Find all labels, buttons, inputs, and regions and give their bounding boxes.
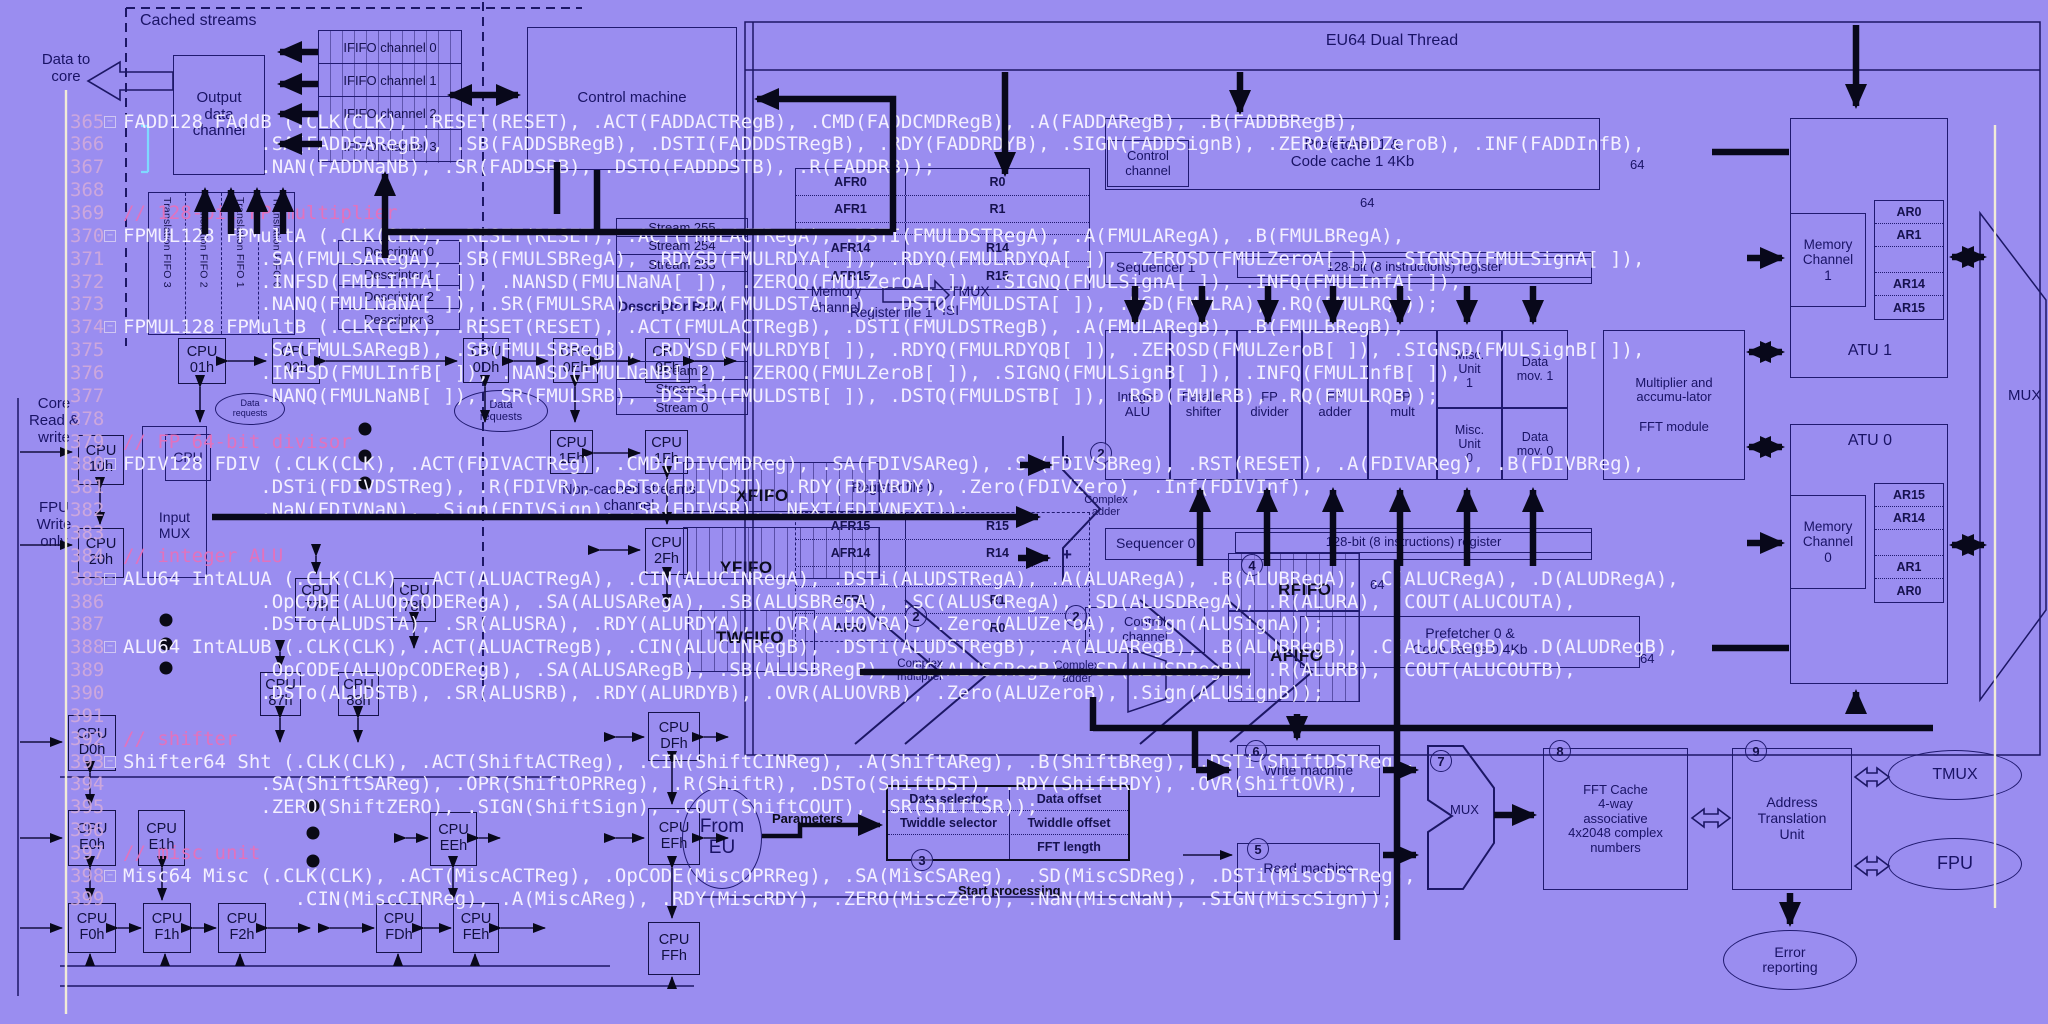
code-text: .NANQ(FMULNaNA[ ]), .SR(FMULSRA), .DSTSD… (123, 293, 1438, 316)
line-number: 389 (70, 659, 104, 682)
fold-marker-icon: − (104, 230, 116, 242)
fold-marker-icon: − (104, 870, 116, 882)
code-line: 383 (0, 522, 2048, 545)
code-line: 369// 128-bit FP multiplier (0, 202, 2048, 225)
code-text: // 128-bit FP multiplier (123, 202, 398, 225)
code-line: 395 .ZERO(ShiftZERO), .SIGN(ShiftSign), … (0, 796, 2048, 819)
code-line: 399 .CIN(MiscCINReg), .A(MiscAReg), .RDY… (0, 888, 2048, 911)
line-number: 382 (70, 499, 104, 522)
code-text: // FP 64-bit divisor (123, 431, 352, 454)
fold-marker-icon: − (104, 321, 116, 333)
code-text: .NANQ(FMULNaNB[ ]), .SR(FMULSRB), .DSTSD… (123, 385, 1438, 408)
line-number: 394 (70, 773, 104, 796)
code-line: 381 .DSTi(FDIVDSTReg), .R(FDIVR), .DSTo(… (0, 476, 2048, 499)
line-number: 376 (70, 362, 104, 385)
code-line: 380−FDIV128 FDIV (.CLK(CLK), .ACT(FDIVAC… (0, 453, 2048, 476)
code-line: 397// misc unit (0, 842, 2048, 865)
code-line: 382 .NaN(FDIVNaN), .Sign(FDIVSign), .SR(… (0, 499, 2048, 522)
fold-marker-icon: − (104, 458, 116, 470)
line-number: 378 (70, 408, 104, 431)
code-line: 370−FPMUL128 FPMultA (.CLK(CLK), .RESET(… (0, 225, 2048, 248)
line-number: 383 (70, 522, 104, 545)
code-line: 368 (0, 179, 2048, 202)
code-line: 372 .INFSD(FMULInfA[ ]), .NANSD(FMULNaNA… (0, 271, 2048, 294)
fold-marker-icon: − (104, 573, 116, 585)
line-number: 372 (70, 271, 104, 294)
fold-marker-icon: − (104, 641, 116, 653)
code-line: 387 .DSTo(ALUDSTA), .SR(ALUSRA), .RDY(AL… (0, 613, 2048, 636)
code-line: 373 .NANQ(FMULNaNA[ ]), .SR(FMULSRA), .D… (0, 293, 2048, 316)
code-text: .SA(FMULSARegA), .SB(FMULSBRegA), .RDYSD… (123, 248, 1644, 271)
line-number: 398 (70, 865, 104, 888)
code-text: .DSTo(ALUDSTA), .SR(ALUSRA), .RDY(ALURDY… (123, 613, 1324, 636)
line-number: 390 (70, 682, 104, 705)
code-text: Shifter64 Sht (.CLK(CLK), .ACT(ShiftACTR… (123, 751, 1416, 774)
code-text: // misc unit (123, 842, 260, 865)
code-text: FDIV128 FDIV (.CLK(CLK), .ACT(FDIVACTReg… (123, 453, 1644, 476)
code-text: .NaN(FDIVNaN), .Sign(FDIVSign), .SR(FDIV… (123, 499, 969, 522)
code-line: 392// shifter (0, 728, 2048, 751)
code-line: 366 .SA(FADDSARegB), .SB(FADDSBRegB), .D… (0, 133, 2048, 156)
code-line: 367 .NAN(FADDNaNB), .SR(FADDSRB), .DSTO(… (0, 156, 2048, 179)
code-line: 391 (0, 705, 2048, 728)
line-number: 379 (70, 431, 104, 454)
line-number: 371 (70, 248, 104, 271)
line-number: 395 (70, 796, 104, 819)
line-number: 370 (70, 225, 104, 248)
line-number: 386 (70, 591, 104, 614)
code-line: 379// FP 64-bit divisor (0, 431, 2048, 454)
line-number: 392 (70, 728, 104, 751)
code-line: 389 .OpCODE(ALUOpCODERegB), .SA(ALUSAReg… (0, 659, 2048, 682)
line-number: 393 (70, 751, 104, 774)
line-number: 381 (70, 476, 104, 499)
line-number: 374 (70, 316, 104, 339)
code-line: 393−Shifter64 Sht (.CLK(CLK), .ACT(Shift… (0, 751, 2048, 774)
line-number: 369 (70, 202, 104, 225)
line-number: 391 (70, 705, 104, 728)
line-number: 397 (70, 842, 104, 865)
code-text: .INFSD(FMULInfB[ ]), .NANSD(FMULNaNB[ ])… (123, 362, 1461, 385)
code-text: .INFSD(FMULInfA[ ]), .NANSD(FMULNaNA[ ])… (123, 271, 1461, 294)
line-number: 366 (70, 133, 104, 156)
code-text: .OpCODE(ALUOpCODERegB), .SA(ALUSARegB), … (123, 659, 1576, 682)
code-text: .DSTi(FDIVDSTReg), .R(FDIVR), .DSTo(FDIV… (123, 476, 1313, 499)
line-number: 396 (70, 819, 104, 842)
screenshot-root: Output data channelControl machine Input… (0, 0, 2048, 1024)
code-text: .OpCODE(ALUOpCODERegA), .SA(ALUSARegA), … (123, 591, 1576, 614)
code-text: FPMUL128 FPMultB (.CLK(CLK), .RESET(RESE… (123, 316, 1404, 339)
code-text: .NAN(FADDNaNB), .SR(FADDSRB), .DSTO(FADD… (123, 156, 935, 179)
code-text: ALU64 IntALUB (.CLK(CLK), .ACT(ALUACTReg… (123, 636, 1679, 659)
line-number: 387 (70, 613, 104, 636)
code-line: 375 .SA(FMULSARegB), .SB(FMULSBRegB), .R… (0, 339, 2048, 362)
code-text: .CIN(MiscCINReg), .A(MiscAReg), .RDY(Mis… (123, 888, 1393, 911)
code-line: 371 .SA(FMULSARegA), .SB(FMULSBRegA), .R… (0, 248, 2048, 271)
code-line: 384// integer ALU (0, 545, 2048, 568)
code-text: .DSTo(ALUDSTB), .SR(ALUSRB), .RDY(ALURDY… (123, 682, 1324, 705)
code-line: 396 (0, 819, 2048, 842)
code-text: .SA(ShiftSAReg), .OPR(ShiftOPRReg), .R(S… (123, 773, 1358, 796)
line-number: 367 (70, 156, 104, 179)
code-line: 390 .DSTo(ALUDSTB), .SR(ALUSRB), .RDY(AL… (0, 682, 2048, 705)
line-number: 380 (70, 453, 104, 476)
code-text: .SA(FMULSARegB), .SB(FMULSBRegB), .RDYSD… (123, 339, 1644, 362)
code-text: // integer ALU (123, 545, 283, 568)
line-number: 373 (70, 293, 104, 316)
line-number: 384 (70, 545, 104, 568)
code-line: 388−ALU64 IntALUB (.CLK(CLK), .ACT(ALUAC… (0, 636, 2048, 659)
code-line: 365−FADD128 FAddB (.CLK(CLK), .RESET(RES… (0, 111, 2048, 134)
code-line: 394 .SA(ShiftSAReg), .OPR(ShiftOPRReg), … (0, 773, 2048, 796)
line-number: 375 (70, 339, 104, 362)
code-text: .ZERO(ShiftZERO), .SIGN(ShiftSign), .COU… (123, 796, 1038, 819)
code-line: 378 (0, 408, 2048, 431)
code-line: 377 .NANQ(FMULNaNB[ ]), .SR(FMULSRB), .D… (0, 385, 2048, 408)
code-line: 398−Misc64 Misc (.CLK(CLK), .ACT(MiscACT… (0, 865, 2048, 888)
code-text: ALU64 IntALUA (.CLK(CLK), .ACT(ALUACTReg… (123, 568, 1679, 591)
code-text: // shifter (123, 728, 237, 751)
line-number: 388 (70, 636, 104, 659)
line-number: 399 (70, 888, 104, 911)
line-number: 365 (70, 111, 104, 134)
code-text: FPMUL128 FPMultA (.CLK(CLK), .RESET(RESE… (123, 225, 1404, 248)
code-editor: 365−FADD128 FAddB (.CLK(CLK), .RESET(RES… (0, 0, 2048, 1024)
code-line: 376 .INFSD(FMULInfB[ ]), .NANSD(FMULNaNB… (0, 362, 2048, 385)
code-text: FADD128 FAddB (.CLK(CLK), .RESET(RESET),… (123, 111, 1358, 134)
fold-marker-icon: − (104, 116, 116, 128)
line-number: 368 (70, 179, 104, 202)
fold-marker-icon: − (104, 756, 116, 768)
code-line: 385−ALU64 IntALUA (.CLK(CLK), .ACT(ALUAC… (0, 568, 2048, 591)
line-number: 377 (70, 385, 104, 408)
code-text: .SA(FADDSARegB), .SB(FADDSBRegB), .DSTI(… (123, 133, 1644, 156)
line-number: 385 (70, 568, 104, 591)
code-line: 386 .OpCODE(ALUOpCODERegA), .SA(ALUSAReg… (0, 591, 2048, 614)
code-text: Misc64 Misc (.CLK(CLK), .ACT(MiscACTReg)… (123, 865, 1416, 888)
code-line: 374−FPMUL128 FPMultB (.CLK(CLK), .RESET(… (0, 316, 2048, 339)
